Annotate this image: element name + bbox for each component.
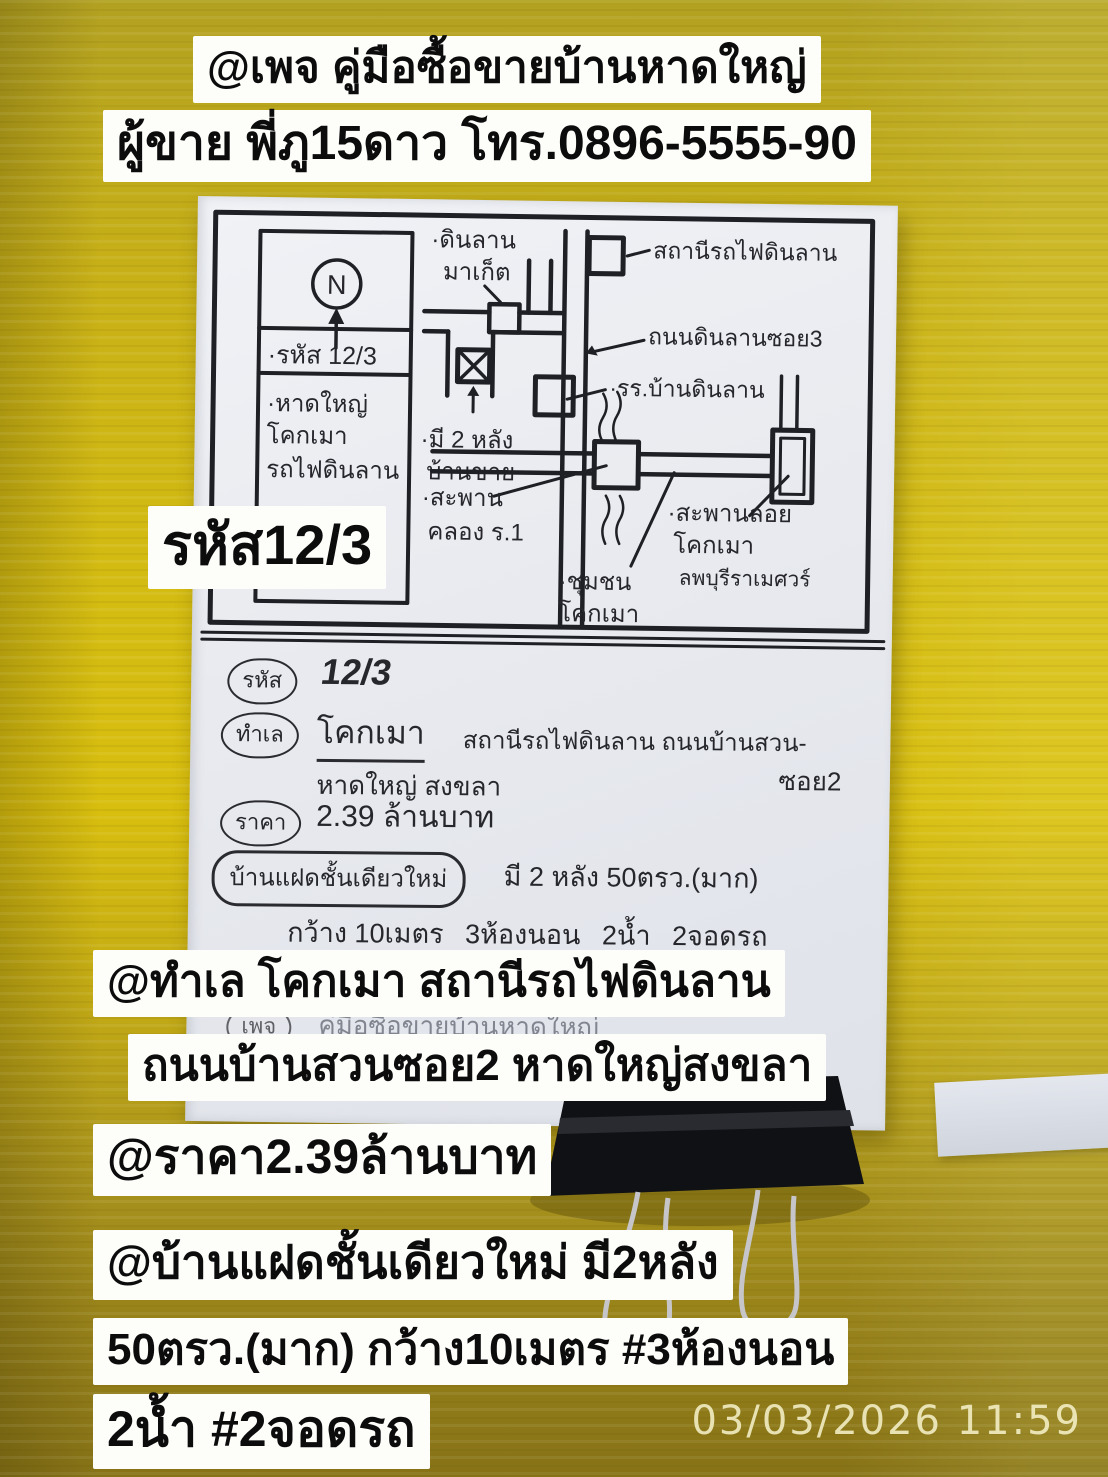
- note-location-main: โคกเมา: [317, 707, 425, 763]
- caption-house-3: 2น้ำ #2จอดรถ: [93, 1394, 430, 1469]
- caption-seller-phone: ผู้ขาย พี่ภู15ดาว โทร.0896-5555-90: [103, 110, 871, 182]
- caption-house-2: 50ตรว.(มาก) กว้าง10เมตร #3ห้องนอน: [93, 1318, 848, 1385]
- note-price-label: ราคา: [220, 800, 302, 847]
- note-price-value: 2.39 ล้านบาท: [316, 793, 495, 842]
- caption-price: @ราคา2.39ล้านบาท: [93, 1124, 551, 1196]
- note-location-rest: สถานีรถไฟดินลาน ถนนบ้านสวน-: [463, 720, 807, 762]
- caption-code-badge: รหัส12/3: [148, 506, 386, 589]
- caption-house-1: @บ้านแฝดชั้นเดียวใหม่ มี2หลัง: [93, 1230, 733, 1300]
- caption-location-1: @ทำเล โคกเมา สถานีรถไฟดินลาน: [93, 950, 785, 1017]
- caption-page: @เพจ คู่มือซื้อขายบ้านหาดใหญ่: [193, 36, 821, 103]
- underlying-paper-corner: [934, 1073, 1108, 1156]
- note-location-label: ทำเล: [221, 712, 299, 759]
- note-detail-bedrooms: 3ห้องนอน: [465, 919, 581, 954]
- note-location-soi: ซอย2: [778, 761, 841, 803]
- note-detail-bathrooms: 2น้ำ: [602, 920, 651, 950]
- camera-timestamp: 03/03/2026 11:59: [691, 1398, 1082, 1444]
- caption-location-2: ถนนบ้านสวนซอย2 หาดใหญ่สงขลา: [128, 1034, 826, 1101]
- note-house-label: บ้านแฝดชั้นเดียวใหม่: [211, 850, 465, 908]
- note-code-label: รหัส: [227, 658, 297, 705]
- note-detail-width: กว้าง 10เมตร: [287, 918, 444, 949]
- note-house-value: มี 2 หลัง 50ตรว.(มาก): [503, 855, 758, 900]
- note-code-value: 12/3: [318, 651, 394, 694]
